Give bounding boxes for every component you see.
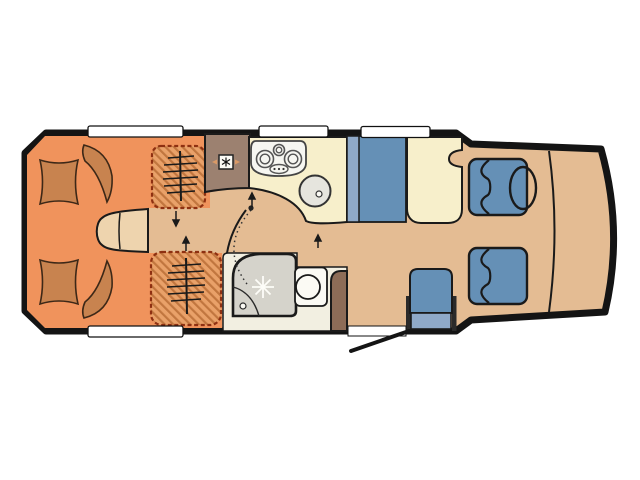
toilet [295, 268, 327, 307]
floorplan-canvas [0, 0, 640, 480]
bathroom-cabinet [331, 271, 347, 331]
corridor-floor [147, 208, 211, 253]
door-pivot [248, 205, 253, 210]
wardrobe-top [152, 146, 205, 208]
bed-walkway [97, 209, 148, 252]
shower [233, 254, 296, 316]
hob-icon [251, 141, 306, 176]
travel-seat [406, 269, 457, 331]
cushion-square-bottom [40, 260, 78, 304]
wardrobe-bottom [151, 252, 221, 325]
shower-drain [240, 303, 246, 309]
sink-icon [300, 176, 331, 207]
dinette-bench [347, 136, 406, 222]
window-top-2 [259, 126, 328, 137]
passenger-seat [469, 248, 527, 304]
window-bottom-1 [88, 326, 183, 337]
window-top-3 [361, 127, 430, 138]
dinette-table [407, 137, 462, 223]
cushion-square-top [40, 160, 78, 204]
window-top-1 [88, 126, 183, 137]
driver-seat [469, 159, 536, 215]
